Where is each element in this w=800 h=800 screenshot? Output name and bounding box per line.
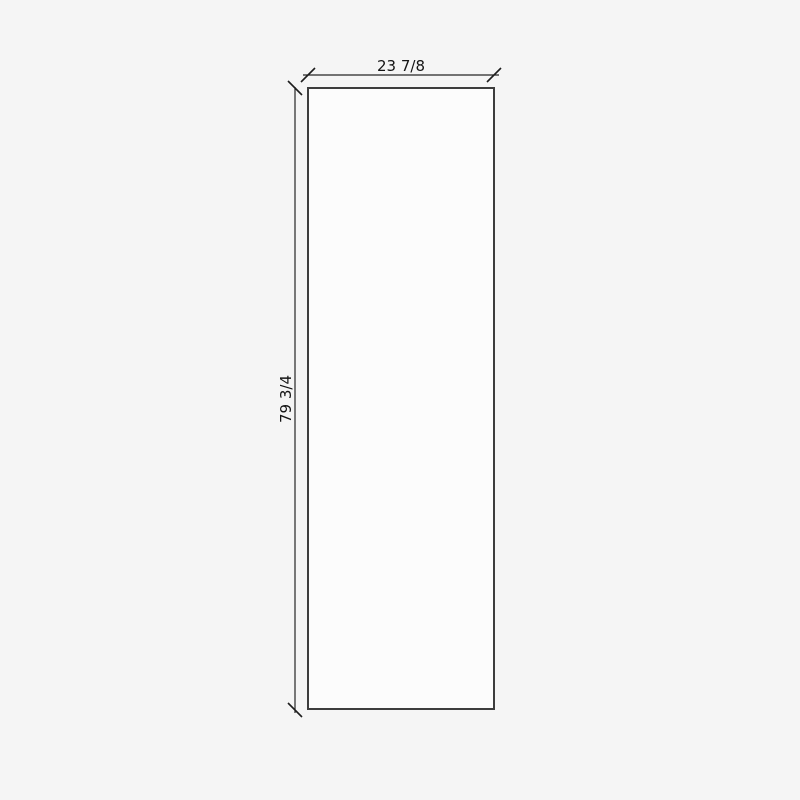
height-dimension: 79 3/4	[277, 81, 302, 717]
dimension-drawing: 23 7/8 79 3/4	[0, 0, 800, 800]
width-dimension-label: 23 7/8	[377, 57, 425, 75]
height-dimension-label: 79 3/4	[277, 375, 295, 423]
drawing-canvas: 23 7/8 79 3/4	[0, 0, 800, 800]
width-dimension: 23 7/8	[301, 57, 501, 82]
panel-outline	[308, 88, 494, 709]
